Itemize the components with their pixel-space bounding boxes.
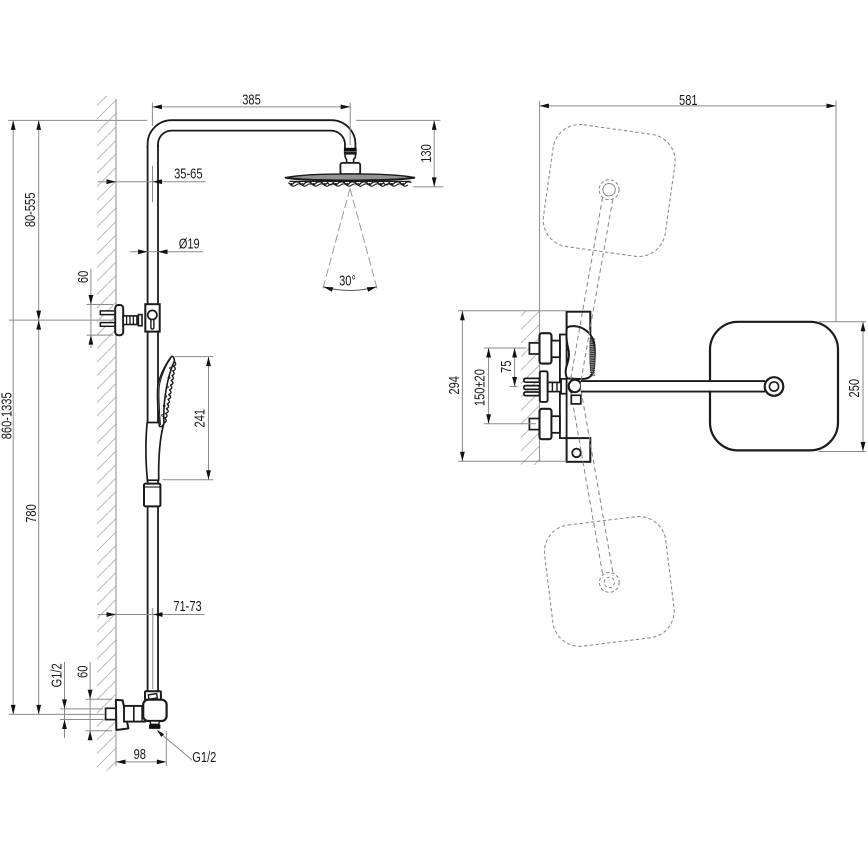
- svg-text:241: 241: [191, 409, 208, 428]
- svg-text:Ø19: Ø19: [179, 235, 200, 252]
- svg-text:130: 130: [417, 144, 434, 163]
- svg-text:60: 60: [74, 666, 91, 678]
- svg-text:250: 250: [845, 379, 862, 398]
- svg-text:780: 780: [22, 504, 39, 523]
- svg-text:G1/2: G1/2: [48, 663, 65, 687]
- svg-text:150±20: 150±20: [471, 369, 488, 406]
- svg-text:385: 385: [242, 91, 261, 108]
- svg-text:75: 75: [498, 361, 515, 373]
- svg-text:G1/2: G1/2: [192, 748, 216, 765]
- svg-text:60: 60: [74, 271, 91, 283]
- svg-text:581: 581: [679, 91, 698, 108]
- svg-text:294: 294: [446, 376, 463, 395]
- svg-text:35-65: 35-65: [174, 165, 202, 182]
- svg-text:98: 98: [134, 746, 146, 763]
- svg-text:30°: 30°: [339, 272, 356, 289]
- svg-text:860-1335: 860-1335: [0, 392, 15, 439]
- svg-text:80-555: 80-555: [21, 193, 38, 228]
- svg-text:71-73: 71-73: [173, 597, 201, 614]
